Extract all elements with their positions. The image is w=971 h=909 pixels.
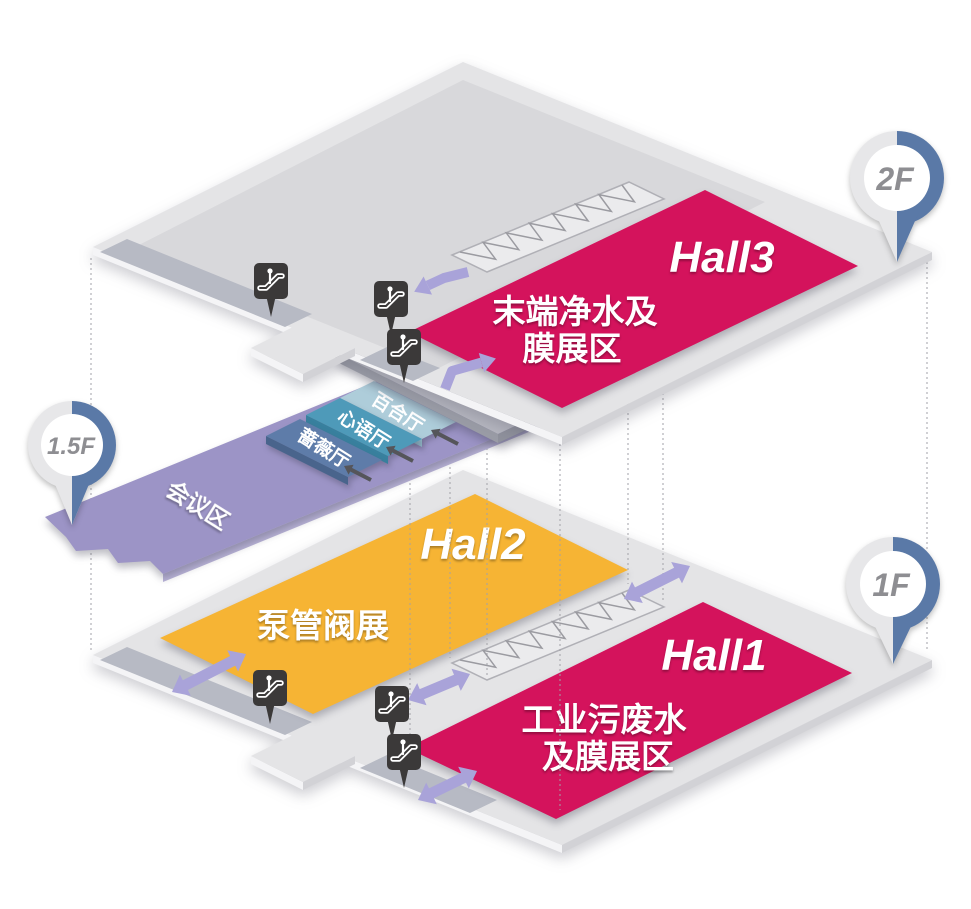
floor-map-canvas: Hall2 泵管阀展 Hall1 工业污废水 及膜展区 会议区 百合厅 心语厅	[0, 0, 971, 909]
hall1-label-line2: 及膜展区	[542, 737, 674, 776]
floor-2f-plate: Hall3 末端净水及 膜展区	[93, 62, 932, 445]
venue-floor-map: Hall2 泵管阀展 Hall1 工业污废水 及膜展区 会议区 百合厅 心语厅	[0, 0, 971, 909]
hall3-title: Hall3	[669, 233, 774, 282]
hall2-label: 泵管阀展	[257, 606, 389, 645]
pin-label-1-5f: 1.5F	[47, 433, 96, 460]
hall1-label-line1: 工业污废水	[522, 700, 688, 739]
hall2-title: Hall2	[420, 520, 526, 569]
pin-label-2f: 2F	[875, 161, 915, 197]
hall3-label-line1: 末端净水及	[493, 292, 658, 331]
hall3-label-line2: 膜展区	[523, 329, 622, 368]
pin-label-1f: 1F	[872, 567, 911, 603]
hall1-title: Hall1	[661, 631, 766, 680]
